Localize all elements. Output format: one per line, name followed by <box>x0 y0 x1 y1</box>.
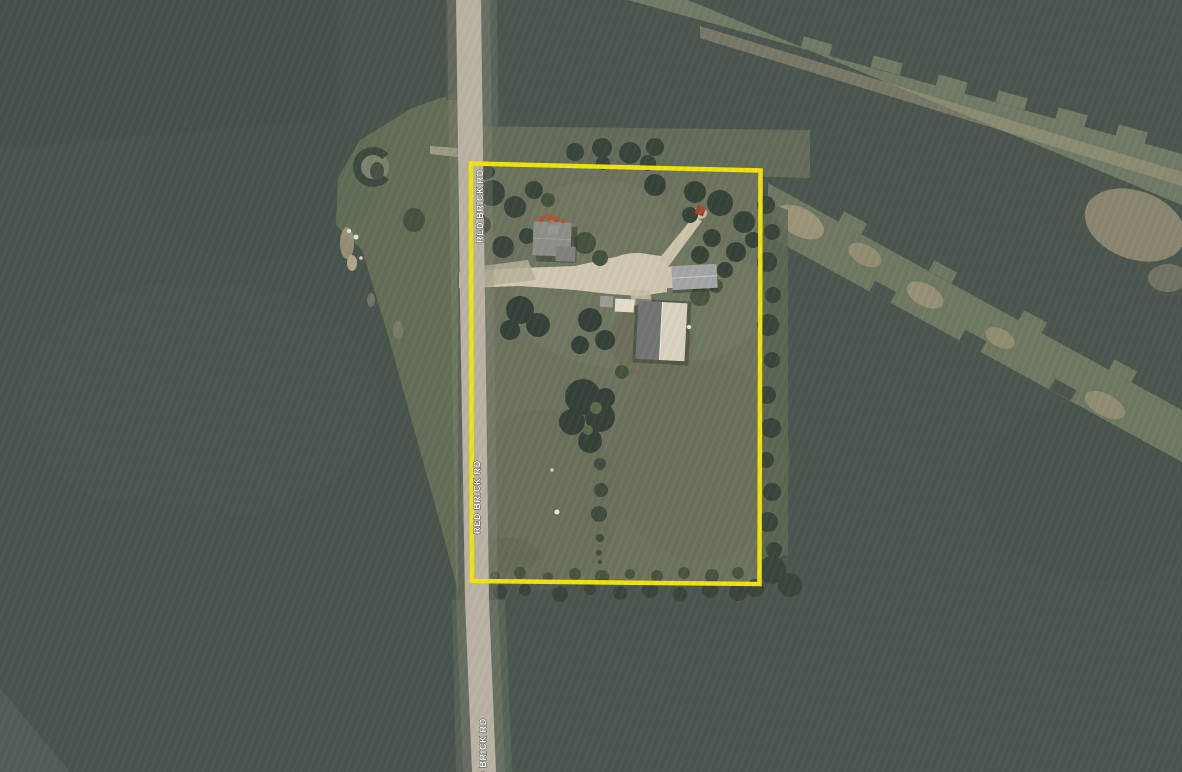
tree <box>778 573 802 597</box>
tree <box>707 190 733 216</box>
road-label: RED BRICK RD <box>478 718 488 772</box>
tree <box>519 228 535 244</box>
shop-roof-east <box>659 302 687 361</box>
field-mottle <box>20 280 380 520</box>
tree <box>733 211 755 233</box>
white-dot <box>687 325 691 329</box>
tree <box>541 193 555 207</box>
tree <box>592 138 612 158</box>
tree <box>703 229 721 247</box>
shop-building <box>632 299 691 366</box>
tree <box>595 330 615 350</box>
tree <box>765 287 781 303</box>
tree <box>525 181 543 199</box>
tree <box>559 409 585 435</box>
tree <box>578 308 602 332</box>
tree <box>764 352 780 368</box>
tree-highlight <box>583 425 593 435</box>
tree <box>644 174 666 196</box>
tree <box>526 313 550 337</box>
tree <box>646 138 664 156</box>
tree <box>566 143 584 161</box>
tree <box>764 224 780 240</box>
road-label: RED BRICK RD <box>472 460 482 534</box>
aerial-map[interactable]: RED BRICK RD RED BRICK RD RED BRICK RD <box>0 0 1182 772</box>
tree <box>717 262 733 278</box>
tree <box>571 336 589 354</box>
tree <box>574 232 596 254</box>
white-dot <box>550 468 554 472</box>
tree <box>766 542 782 558</box>
tree <box>619 142 641 164</box>
tree <box>682 207 698 223</box>
tree <box>500 320 520 340</box>
tree <box>615 365 629 379</box>
tree <box>592 250 608 266</box>
house <box>532 221 577 263</box>
shed-gray <box>600 296 614 308</box>
tree <box>726 242 746 262</box>
tree <box>492 236 514 258</box>
shop-roof-west <box>636 301 663 360</box>
tree <box>763 483 781 501</box>
tree <box>761 418 781 438</box>
tree <box>403 208 425 232</box>
map-canvas[interactable]: RED BRICK RD RED BRICK RD RED BRICK RD <box>0 0 1182 772</box>
white-dot <box>555 510 560 515</box>
road-label: RED BRICK RD <box>475 169 485 243</box>
shed-white <box>615 299 635 313</box>
house-wing <box>555 246 576 262</box>
house-dormer <box>548 226 558 234</box>
tree-highlight <box>590 402 602 414</box>
tree <box>684 181 706 203</box>
garage-building <box>671 264 717 293</box>
tree <box>504 196 526 218</box>
tree <box>691 246 709 264</box>
